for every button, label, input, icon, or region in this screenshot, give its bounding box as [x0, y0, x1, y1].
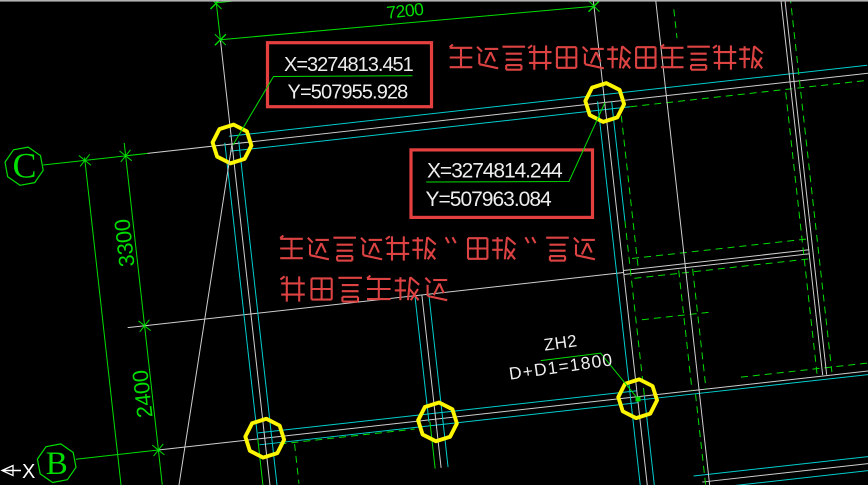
- svg-text:X=3274814.244: X=3274814.244: [427, 160, 563, 183]
- svg-text:C: C: [12, 146, 36, 186]
- svg-text:B: B: [46, 446, 68, 482]
- svg-text:X: X: [22, 461, 35, 483]
- svg-text:Y=507963.084: Y=507963.084: [426, 188, 553, 211]
- svg-text:Y=507955.928: Y=507955.928: [288, 81, 409, 103]
- svg-text:3300: 3300: [109, 218, 139, 268]
- svg-text:2400: 2400: [127, 369, 157, 419]
- svg-text:X=3274813.451: X=3274813.451: [284, 54, 414, 76]
